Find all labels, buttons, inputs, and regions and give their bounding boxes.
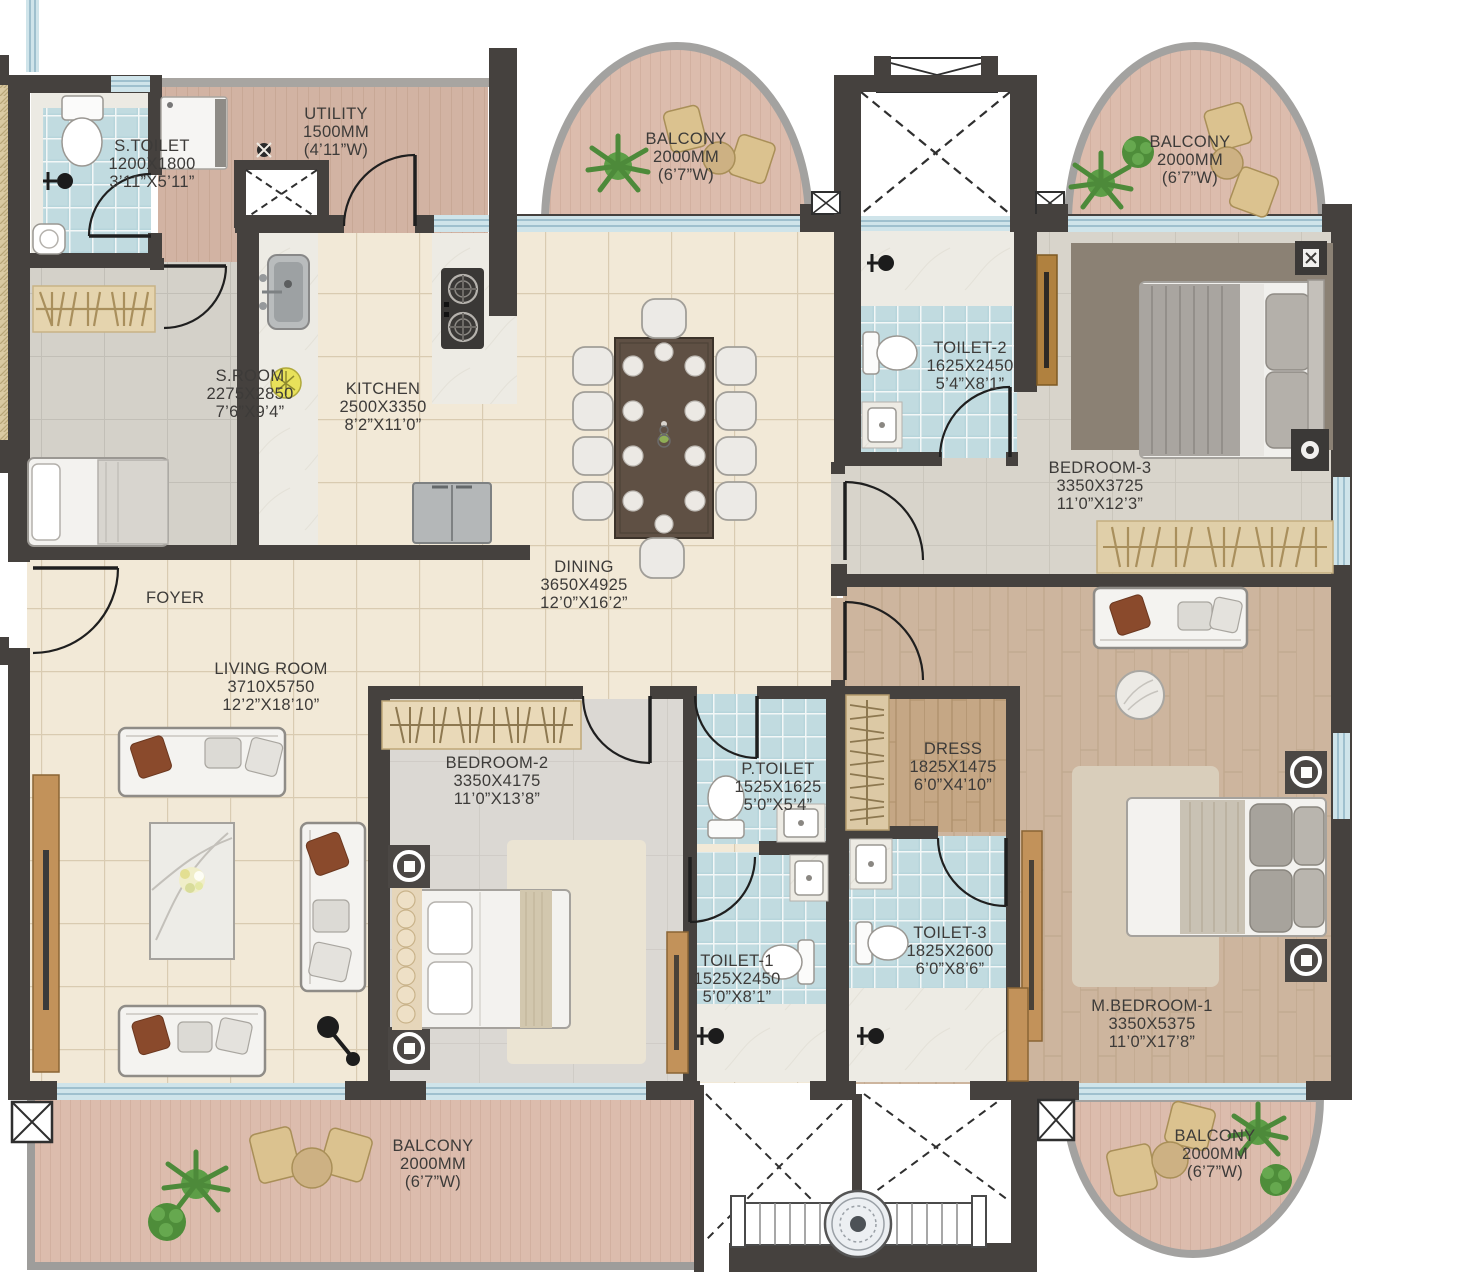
svg-text:3350X4175: 3350X4175 [453,772,540,790]
svg-text:12’0”X16’2”: 12’0”X16’2” [540,594,628,612]
svg-text:5’0”X5’4”: 5’0”X5’4” [744,796,813,814]
svg-text:2000MM: 2000MM [1182,1145,1248,1163]
svg-text:3’11”X5’11”: 3’11”X5’11” [109,173,194,191]
svg-text:LIVING ROOM: LIVING ROOM [214,660,327,678]
svg-text:8’2”X11’0”: 8’2”X11’0” [345,416,422,434]
svg-text:TOILET-2: TOILET-2 [933,339,1007,357]
svg-text:DRESS: DRESS [924,740,982,758]
svg-text:(6’7”W): (6’7”W) [1162,169,1218,187]
svg-text:11’0”X17’8”: 11’0”X17’8” [1109,1033,1195,1051]
svg-text:(6’7”W): (6’7”W) [1187,1163,1243,1181]
svg-text:FOYER: FOYER [146,589,204,607]
svg-text:TOILET-3: TOILET-3 [913,924,987,942]
svg-text:DINING: DINING [554,558,614,576]
svg-text:(4’11”W): (4’11”W) [304,141,368,159]
svg-text:S.ROOM: S.ROOM [216,367,285,385]
svg-text:11’0”X13’8”: 11’0”X13’8” [454,790,540,808]
svg-text:TOILET-1: TOILET-1 [700,952,774,970]
svg-text:M.BEDROOM-1: M.BEDROOM-1 [1091,997,1213,1015]
svg-text:BEDROOM-2: BEDROOM-2 [446,754,549,772]
svg-text:(6’7”W): (6’7”W) [658,166,714,184]
svg-text:2500X3350: 2500X3350 [339,398,426,416]
svg-text:3650X4925: 3650X4925 [540,576,627,594]
svg-text:KITCHEN: KITCHEN [346,380,421,398]
svg-text:BALCONY: BALCONY [646,130,727,148]
svg-text:UTILITY: UTILITY [304,105,368,123]
svg-text:2275X2850: 2275X2850 [206,385,293,403]
svg-text:12’2”X18’10”: 12’2”X18’10” [222,696,319,714]
svg-text:1825X2600: 1825X2600 [906,942,993,960]
svg-text:1525X1625: 1525X1625 [734,778,821,796]
svg-text:S.TOILET: S.TOILET [114,137,189,155]
svg-text:6’0”X8’6”: 6’0”X8’6” [916,960,985,978]
svg-text:BALCONY: BALCONY [1175,1127,1256,1145]
svg-text:3710X5750: 3710X5750 [227,678,314,696]
svg-text:7’6”X9’4”: 7’6”X9’4” [216,403,285,421]
svg-text:2000MM: 2000MM [1157,151,1223,169]
svg-text:1625X2450: 1625X2450 [926,357,1013,375]
svg-text:2000MM: 2000MM [400,1155,466,1173]
svg-text:3350X5375: 3350X5375 [1108,1015,1195,1033]
svg-text:BALCONY: BALCONY [393,1137,474,1155]
svg-text:11’0”X12’3”: 11’0”X12’3” [1057,495,1143,513]
svg-text:5’0”X8’1”: 5’0”X8’1” [703,988,772,1006]
svg-text:BEDROOM-3: BEDROOM-3 [1049,459,1152,477]
svg-text:5’4”X8’1”: 5’4”X8’1” [936,375,1005,393]
svg-text:1200X1800: 1200X1800 [108,155,195,173]
svg-text:1500MM: 1500MM [303,123,369,141]
svg-text:(6’7”W): (6’7”W) [405,1173,461,1191]
svg-text:6’0”X4’10”: 6’0”X4’10” [914,776,992,794]
svg-text:3350X3725: 3350X3725 [1056,477,1143,495]
svg-text:1525X2450: 1525X2450 [693,970,780,988]
svg-text:P.TOILET: P.TOILET [741,760,814,778]
svg-text:1825X1475: 1825X1475 [909,758,996,776]
svg-text:2000MM: 2000MM [653,148,719,166]
svg-text:BALCONY: BALCONY [1150,133,1231,151]
